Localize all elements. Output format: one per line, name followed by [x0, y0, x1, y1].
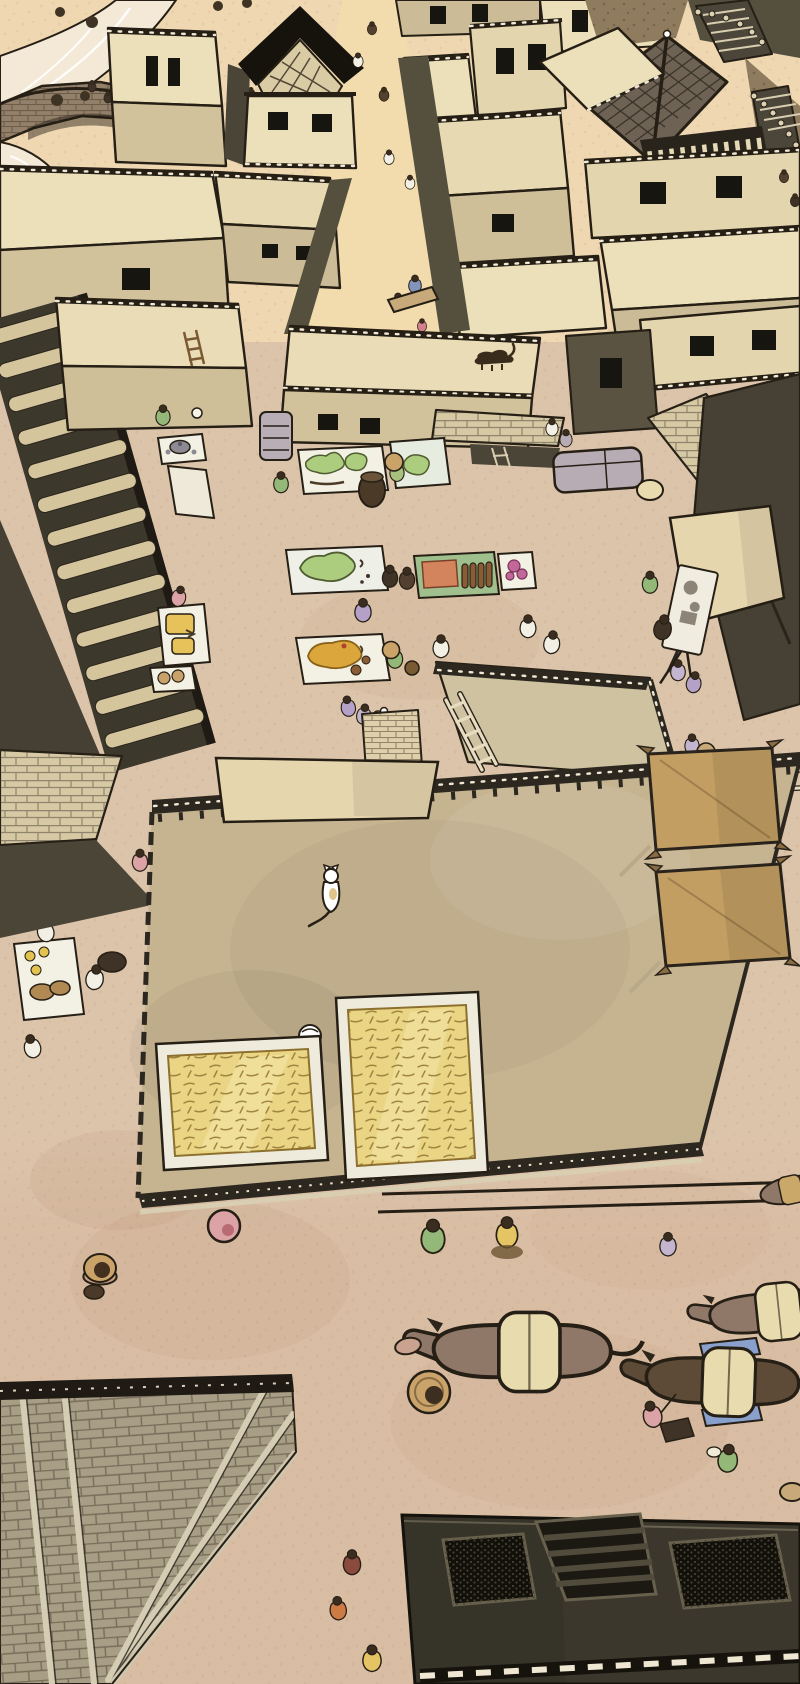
basket-carrier	[408, 1371, 450, 1413]
straw-hat	[385, 453, 403, 471]
covered-handcart	[553, 447, 644, 493]
roof-finial	[664, 31, 671, 38]
aerial-town-scene: Aerial bird's-eye view of an ancient ear…	[0, 0, 800, 1684]
textile-mat	[498, 552, 536, 590]
produce-mat-3	[286, 546, 388, 594]
rooftop-awning	[216, 758, 438, 822]
straw-hat	[383, 642, 400, 659]
webtoon-panel: Aerial bird's-eye view of an ancient ear…	[0, 0, 800, 1684]
cloth-and-jar-mat	[414, 552, 499, 598]
brown-bowl	[405, 661, 419, 675]
white-jar	[192, 408, 202, 418]
tan-bundle-edge	[780, 1483, 800, 1501]
skylight-grate-left	[443, 1534, 535, 1605]
straw-drying-mat-right	[336, 992, 488, 1180]
house-under-pagoda	[585, 148, 800, 238]
ochre-fruit-mat	[296, 634, 390, 684]
fruit-mat	[14, 938, 84, 1020]
cloth-bundle	[637, 480, 663, 500]
large-rooftop	[130, 740, 800, 1212]
clay-pot	[208, 1210, 240, 1242]
tea-set-tray	[158, 434, 206, 464]
house-upper-left	[108, 28, 226, 166]
long-mat	[168, 466, 214, 518]
house-left-mid	[56, 298, 252, 430]
dark-sack	[98, 952, 126, 972]
shutter-rack	[260, 412, 292, 460]
dark-warehouse-roof	[402, 1514, 800, 1684]
straw-drying-mat-left	[156, 1036, 328, 1170]
dark-pot	[359, 472, 385, 507]
skylight-grate-right	[670, 1535, 790, 1608]
yellow-tray	[158, 604, 210, 666]
house-mid-right-2	[452, 256, 606, 338]
small-tray	[150, 666, 196, 692]
